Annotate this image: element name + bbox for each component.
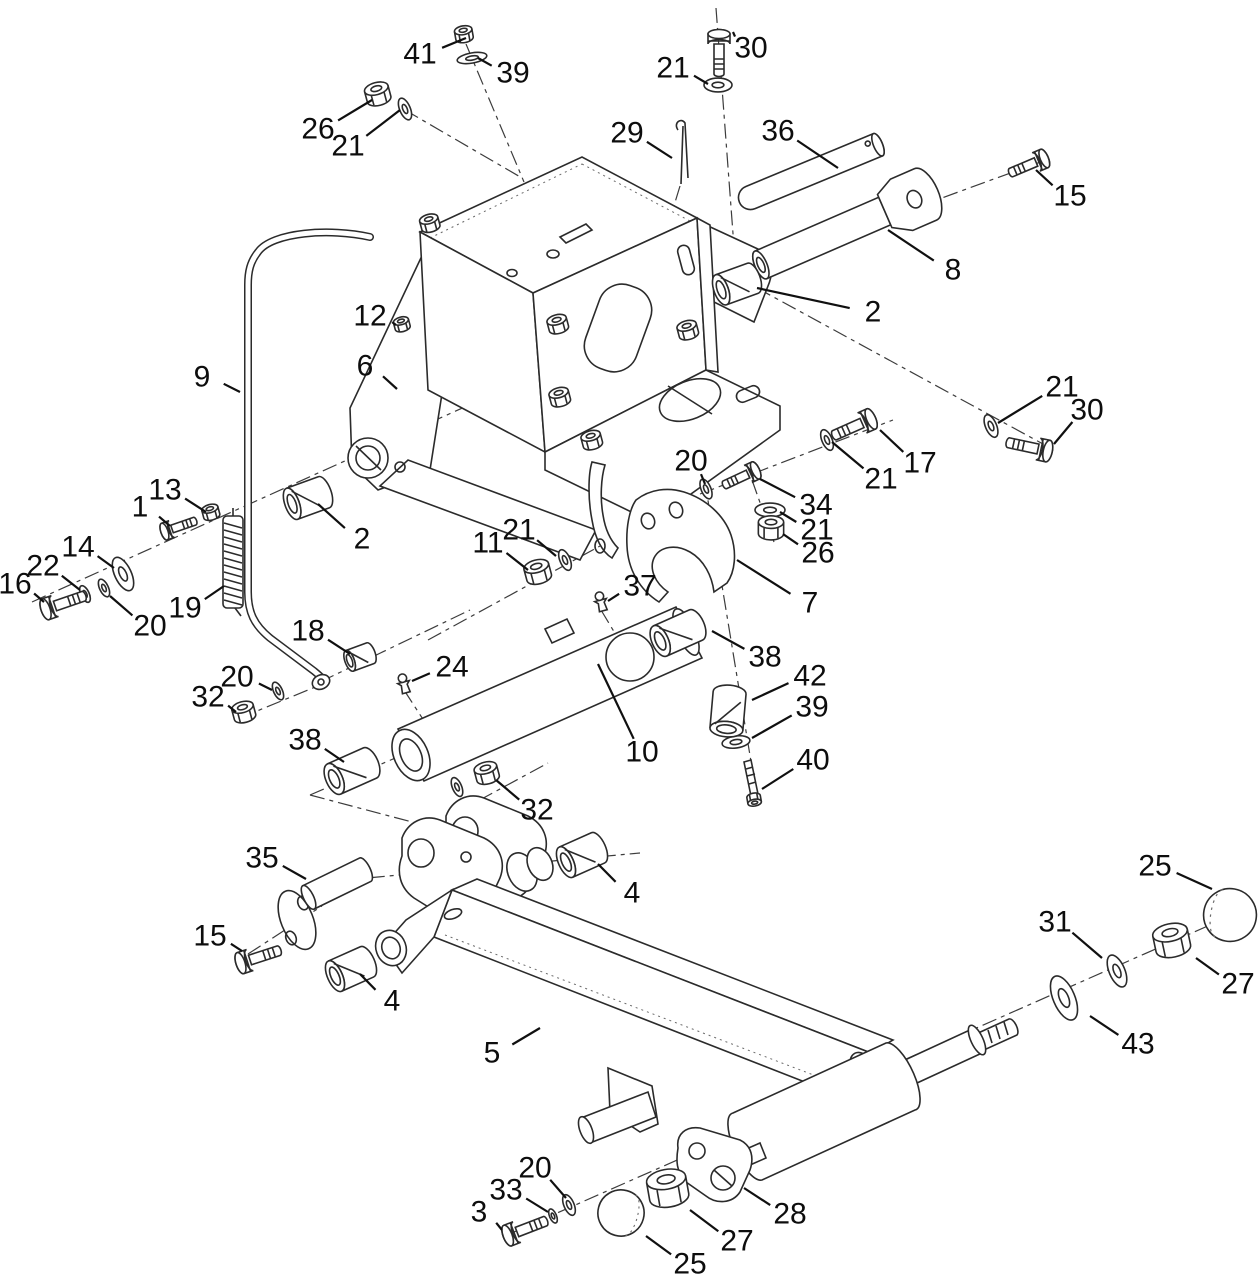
callout-leader-line [496,1223,502,1230]
callout-number: 15 [193,920,226,953]
part-bolt-3 [500,1210,552,1247]
callout-35: 35 [245,842,306,880]
callout-38: 38 [288,724,344,763]
callout-25: 25 [1138,850,1212,890]
callout-number: 6 [357,350,374,383]
callout-number: 40 [796,744,829,777]
callout-number: 18 [291,615,324,648]
callout-leader-line [880,430,903,452]
callout-number: 20 [133,610,166,643]
part-spacer-42 [709,684,746,738]
part-washer-21-top [704,78,732,92]
part-nut-13 [201,503,221,522]
callout-leader-line [507,553,529,570]
part-washer-20-d [560,1193,578,1217]
part-washer-32 [449,776,465,798]
callout-number: 10 [625,736,658,769]
callout-number: 30 [1070,394,1103,427]
callout-number: 25 [673,1248,706,1281]
callout-number: 31 [1038,906,1071,939]
callout-number: 27 [1221,968,1254,1001]
callout-leader-line [318,504,345,528]
callout-number: 16 [0,568,32,601]
callout-leader-line [110,596,132,615]
callout-39: 39 [752,691,829,739]
part-pin-36 [735,132,887,213]
callout-number: 25 [1138,850,1171,883]
callout-40: 40 [762,744,830,790]
callout-leader-line [366,110,400,136]
part-washer-20-b [270,681,286,702]
callout-number: 21 [502,514,535,547]
part-washer-20-c [697,477,714,500]
callout-21: 21 [656,52,708,85]
callout-number: 20 [518,1152,551,1185]
callout-number: 4 [624,877,641,910]
callout-4: 4 [598,864,640,910]
callout-number: 9 [194,361,211,394]
diagram-svg: 4139262129302136158212621301721913114221… [0,0,1258,1283]
callout-38: 38 [712,631,782,674]
callout-number: 20 [220,661,253,694]
part-bolt-1 [158,512,199,541]
callout-19: 19 [168,586,224,625]
callout-leader-line [737,560,791,594]
callout-number: 38 [288,724,321,757]
part-nut-11 [522,557,553,587]
callout-30: 30 [733,32,768,65]
callout-leader-line [1090,1016,1118,1035]
callout-leader-line [646,1236,671,1254]
part-cap-25-r [1199,884,1258,945]
callout-29: 29 [610,117,672,159]
callout-number: 2 [354,523,371,556]
callout-leader-line [694,76,708,84]
callout-20: 20 [220,661,272,694]
callout-number: 4 [384,985,401,1018]
part-nut-27-b [645,1166,691,1210]
callout-9: 9 [194,361,240,394]
callout-number: 15 [1053,180,1086,213]
callout-36: 36 [761,115,838,169]
part-grease-fitting-24 [396,673,413,695]
part-nut-32-b [473,759,501,786]
part-grease-fitting-37 [593,591,610,613]
callout-2: 2 [318,504,370,556]
callout-number: 27 [720,1225,753,1258]
callout-37: 37 [608,570,657,603]
part-bushing-2-l [280,474,336,521]
callout-number: 26 [801,537,834,570]
callout-number: 32 [520,794,553,827]
callout-number: 8 [945,254,962,287]
callout-leader-line [598,864,616,882]
callout-number: 20 [674,445,707,478]
callout-21: 21 [832,442,898,496]
callout-number: 1 [132,491,149,524]
part-washer-21-m2 [755,503,785,517]
callout-18: 18 [291,615,350,655]
callout-number: 38 [748,641,781,674]
callout-14: 14 [61,531,114,569]
callout-number: 13 [148,474,181,507]
callout-leader-line [259,684,272,691]
callout-number: 36 [761,115,794,148]
part-bolt-17 [828,407,880,446]
callout-leader-line [744,1188,770,1205]
callout-number: 5 [484,1037,501,1070]
callout-leader-line [690,1210,718,1231]
part-bushing-18 [341,641,378,672]
callout-number: 7 [802,587,819,620]
callout-number: 26 [301,113,334,146]
callout-4: 4 [360,974,400,1018]
callout-number: 33 [489,1174,522,1207]
part-washer-21-a [396,96,415,121]
part-washer-43 [1045,972,1083,1024]
callout-39: 39 [478,57,530,90]
callout-number: 17 [903,447,936,480]
callout-number: 3 [471,1196,488,1229]
part-bolt-40 [744,760,762,807]
callout-leader-line [1177,873,1212,889]
callout-number: 29 [610,117,643,150]
callout-15: 15 [1036,170,1087,213]
callout-number: 11 [472,527,503,560]
part-bolt-15-l [233,939,284,974]
callout-leader-line [783,534,798,544]
callout-25: 25 [646,1236,707,1281]
callout-number: 21 [331,130,364,163]
callout-number: 39 [795,691,828,724]
callout-21: 21 [998,371,1079,424]
callout-number: 30 [734,32,767,65]
callout-15: 15 [193,920,242,953]
part-washer-14 [108,554,138,594]
part-washer-33 [547,1208,559,1225]
callout-13: 13 [148,474,206,513]
callout-20: 20 [110,596,167,643]
callout-leader-line [762,769,793,789]
part-cap-25-b [593,1185,650,1242]
part-pin-35 [271,856,376,955]
callout-leader-line [412,673,430,681]
callout-20: 20 [518,1152,566,1199]
part-bolt-30-top [708,30,730,77]
callout-leader-line [98,556,114,568]
callout-leader-line [526,1199,548,1213]
callout-number: 37 [623,570,656,603]
callout-leader-line [888,230,934,261]
callout-43: 43 [1090,1016,1155,1061]
callout-leader-line [712,631,744,649]
callout-number: 21 [864,463,897,496]
callout-number: 42 [793,660,826,693]
callout-leader-line [512,1028,540,1045]
callout-number: 28 [773,1198,806,1231]
part-washer-21-r1 [981,413,1001,439]
callout-number: 41 [403,38,436,71]
callout-number: 21 [656,52,689,85]
part-cotter-pin-29 [676,121,688,184]
callout-leader-line [608,594,619,601]
callout-number: 24 [435,651,468,684]
callout-leader-line [328,640,350,654]
callout-number: 19 [168,592,201,625]
callout-41: 41 [403,38,466,71]
callout-leader-line [752,683,789,700]
callout-8: 8 [888,230,961,287]
diagram-canvas: 4139262129302136158212621301721913114221… [0,0,1258,1283]
callout-leader-line [205,586,224,599]
callout-31: 31 [1038,906,1102,959]
callout-leader-line [231,944,242,951]
part-spring-19 [223,508,243,616]
callout-leader-line [998,396,1042,423]
callout-number: 35 [245,842,278,875]
callout-number: 14 [61,531,94,564]
callout-27: 27 [1196,958,1255,1001]
callout-leader-line [224,384,240,392]
callout-5: 5 [484,1028,540,1070]
part-bushing-4-r [552,830,611,880]
callout-leader-line [760,479,795,497]
callout-leader-line [1072,933,1102,958]
callout-leader-line [1196,958,1219,975]
callout-leader-line [185,499,206,512]
callout-number: 12 [353,300,386,333]
part-washer-31 [1103,952,1131,989]
callout-leader-line [832,442,864,468]
callout-leader-line [752,715,792,738]
callout-leader-line [647,142,672,158]
callout-leader-line [338,100,372,120]
callout-26: 26 [783,534,835,570]
callout-leader-line [283,866,306,879]
part-nut-27-r [1151,920,1192,960]
part-nut-26-b [758,516,783,540]
callout-number: 32 [191,681,224,714]
callout-leader-line [757,288,850,308]
callout-number: 39 [496,57,529,90]
part-bolt-30-r [1004,431,1055,462]
callout-24: 24 [412,651,469,684]
callout-number: 2 [865,296,882,329]
part-washer-20-a [96,578,112,599]
callout-number: 43 [1121,1028,1154,1061]
part-bracket-6 [348,157,780,560]
callout-leader-line [1036,170,1053,185]
callout-leader-line [550,1180,566,1198]
part-washer-39-top [456,50,487,65]
